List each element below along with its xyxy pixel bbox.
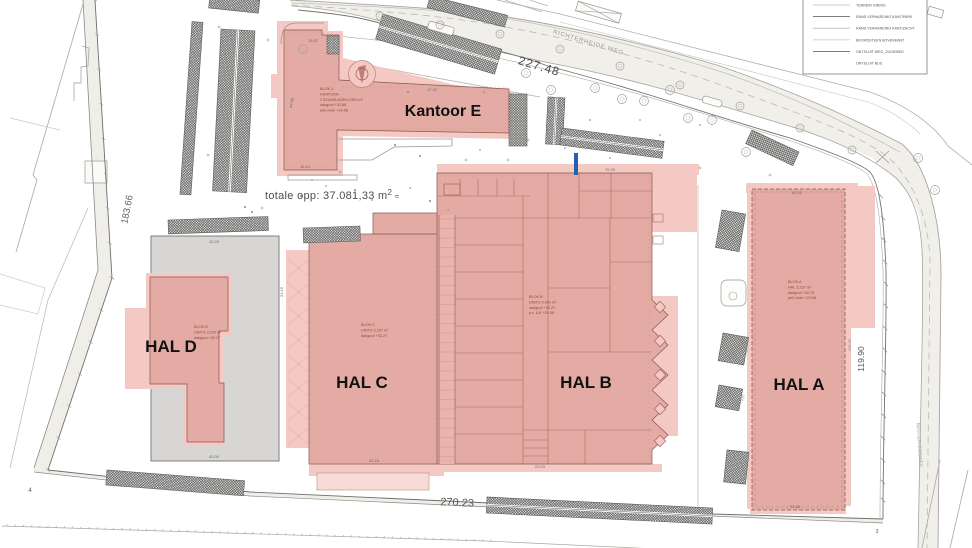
svg-text:UNITS 9.000 m²: UNITS 9.000 m² [529, 300, 557, 304]
svg-text:HAL B: HAL B [560, 373, 612, 392]
svg-text:dakgoot +32.68: dakgoot +32.68 [320, 103, 346, 107]
svg-text:totale opp: 37.081,33 m2 ≈: totale opp: 37.081,33 m2 ≈ [265, 188, 400, 202]
svg-text:15.87: 15.87 [308, 38, 319, 43]
svg-text:HAL 3.237 m²: HAL 3.237 m² [788, 285, 812, 289]
svg-text:23.16: 23.16 [279, 286, 284, 297]
svg-text:TERREIN GRENS: TERREIN GRENS [856, 4, 886, 8]
svg-text:dakgoot +32.27: dakgoot +32.27 [361, 334, 387, 338]
svg-text:RAND VERHARDING KANT/ZACHT: RAND VERHARDING KANT/ZACHT [856, 27, 916, 31]
svg-text:2 BOUWLAGEN 1300 m²: 2 BOUWLAGEN 1300 m² [320, 98, 364, 102]
svg-text:105.55: 105.55 [847, 338, 852, 351]
svg-text:92.52: 92.52 [792, 190, 803, 195]
svg-text:HAL D: HAL D [145, 337, 197, 356]
svg-text:dakgoot +32.27: dakgoot +32.27 [194, 336, 220, 340]
svg-text:HAL A: HAL A [774, 375, 825, 394]
svg-text:BLOK B: BLOK B [529, 295, 543, 299]
svg-text:BOORDSTEEN BOVENKANT: BOORDSTEEN BOVENKANT [856, 38, 905, 42]
svg-text:dakgoot +32.27: dakgoot +32.27 [529, 306, 555, 310]
svg-text:dakgoot +32.70: dakgoot +32.70 [788, 291, 814, 295]
svg-text:ONTSLUIT BUS: ONTSLUIT BUS [856, 62, 883, 66]
svg-text:23.03: 23.03 [535, 464, 546, 469]
svg-text:RAND VERHARDING KANT/PARK: RAND VERHARDING KANT/PARK [856, 15, 913, 19]
svg-text:ONTSLUIT WEG_ZIJGEBIED: ONTSLUIT WEG_ZIJGEBIED [856, 50, 904, 54]
svg-text:peil vloer +29.58: peil vloer +29.58 [320, 109, 348, 113]
svg-text:BLOK C: BLOK C [361, 323, 375, 327]
svg-text:UNITS 3.200 m²: UNITS 3.200 m² [194, 330, 222, 334]
svg-text:42.00: 42.00 [209, 454, 220, 459]
svg-text:3: 3 [876, 529, 879, 535]
svg-text:270.23: 270.23 [440, 496, 474, 509]
svg-text:47.32: 47.32 [427, 87, 438, 92]
svg-text:BLOK 1: BLOK 1 [320, 87, 333, 91]
svg-text:p.v. 8.6 +29.58: p.v. 8.6 +29.58 [529, 311, 554, 315]
svg-text:HAL C: HAL C [336, 373, 388, 392]
svg-text:BLOK A: BLOK A [788, 280, 802, 284]
svg-text:41.23: 41.23 [369, 458, 380, 463]
svg-text:Kantoor E: Kantoor E [405, 103, 482, 120]
svg-text:UNITS 3.237 m²: UNITS 3.237 m² [361, 328, 389, 332]
svg-text:16.10: 16.10 [300, 164, 311, 169]
svg-text:KANTOOR: KANTOOR [320, 92, 339, 96]
svg-text:70.39: 70.39 [605, 167, 616, 172]
svg-text:BLOK D: BLOK D [194, 325, 208, 329]
svg-text:93.55: 93.55 [790, 504, 801, 509]
svg-text:119.90: 119.90 [856, 346, 866, 372]
svg-text:42.00: 42.00 [209, 239, 220, 244]
svg-text:peil vloer +29.58: peil vloer +29.58 [788, 296, 816, 300]
